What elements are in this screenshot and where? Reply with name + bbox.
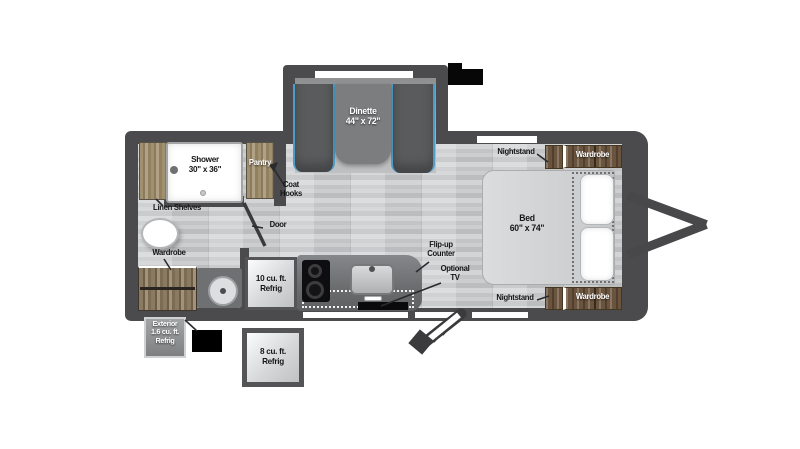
entry-step-tooth — [437, 324, 448, 335]
toilet-flush-icon — [220, 288, 226, 294]
wardrobe-top-label: Wardrobe — [566, 151, 619, 160]
wardrobe-rod — [140, 287, 195, 290]
refrig-10-label: 10 cu. ft.Refrig — [247, 274, 295, 293]
pantry-label: Pantry — [246, 159, 275, 168]
floorplan-canvas: Dinette44" x 72" Shower30" x 36" Pantry … — [0, 0, 800, 449]
dinette-seat-left — [293, 84, 335, 172]
entry-step-tooth — [428, 331, 439, 342]
nightstand-bottom-cabinet — [545, 287, 563, 310]
optional-tv-unit — [358, 302, 408, 310]
door-label: Door — [265, 221, 292, 230]
pillow-bottom — [580, 227, 614, 281]
pantry-cabinet — [246, 142, 274, 199]
bed-label: Bed60" x 74" — [493, 213, 560, 233]
wardrobe-left-cabinet — [138, 266, 197, 311]
window-curbside-2 — [472, 312, 528, 318]
optional-tv-label: OptionalTV — [432, 265, 478, 283]
dinette-label: Dinette44" x 72" — [336, 106, 390, 126]
entry-step-platform — [408, 329, 433, 354]
faucet-icon — [369, 266, 375, 272]
pillow-top — [580, 174, 614, 225]
flip-up-counter-label: Flip-upCounter — [418, 241, 464, 259]
window-front-top — [477, 136, 537, 143]
entry-door-opening — [415, 312, 465, 318]
linen-shelves-label: Linen Shelves — [142, 204, 211, 213]
burner-small-icon — [308, 264, 322, 278]
bath-sink — [141, 218, 179, 249]
shower-drain-icon — [200, 190, 206, 196]
dinette-seat-right — [391, 84, 435, 173]
roof-vent-block-2 — [448, 69, 483, 85]
window-curbside-1 — [303, 312, 408, 318]
shower-label: Shower30" x 36" — [170, 155, 239, 174]
nightstand-top-cabinet — [545, 145, 563, 169]
entry-step-box — [192, 330, 222, 352]
nightstand-top-label: Nightstand — [495, 148, 537, 157]
burner-large-icon — [306, 281, 324, 299]
wardrobe-left-label: Wardrobe — [147, 249, 191, 258]
refrig-8-label: 8 cu. ft.Refrig — [244, 347, 302, 366]
coat-hooks-label: CoatHooks — [273, 181, 309, 199]
exterior-refrig-label: Exterior1.6 cu. ft.Refrig — [146, 320, 184, 345]
wardrobe-bottom-label: Wardrobe — [566, 293, 619, 302]
linen-shelves-cabinet — [139, 142, 167, 200]
nightstand-bottom-label: Nightstand — [493, 294, 537, 303]
sink-accessory — [364, 296, 382, 301]
